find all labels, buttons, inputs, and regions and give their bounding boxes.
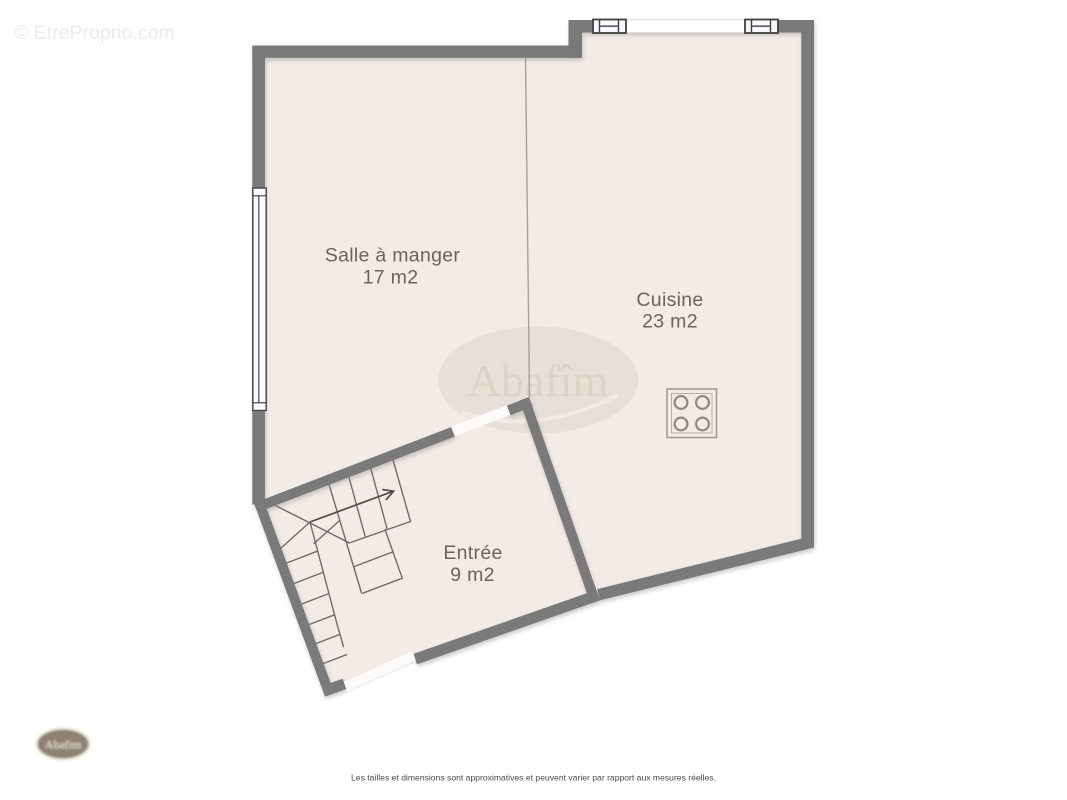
svg-text:Cuisine: Cuisine (636, 289, 703, 311)
svg-text:© EtreProprio.com: © EtreProprio.com (14, 22, 175, 44)
svg-text:Les tailles et dimensions sont: Les tailles et dimensions sont approxima… (351, 773, 716, 783)
svg-text:Abafim: Abafim (45, 738, 82, 752)
svg-text:Entrée: Entrée (443, 542, 502, 564)
svg-text:Abafîm: Abafîm (468, 355, 609, 406)
svg-text:9 m2: 9 m2 (450, 564, 495, 586)
svg-text:Salle à manger: Salle à manger (325, 245, 461, 267)
svg-text:17 m2: 17 m2 (363, 267, 419, 289)
svg-text:23 m2: 23 m2 (642, 311, 698, 333)
